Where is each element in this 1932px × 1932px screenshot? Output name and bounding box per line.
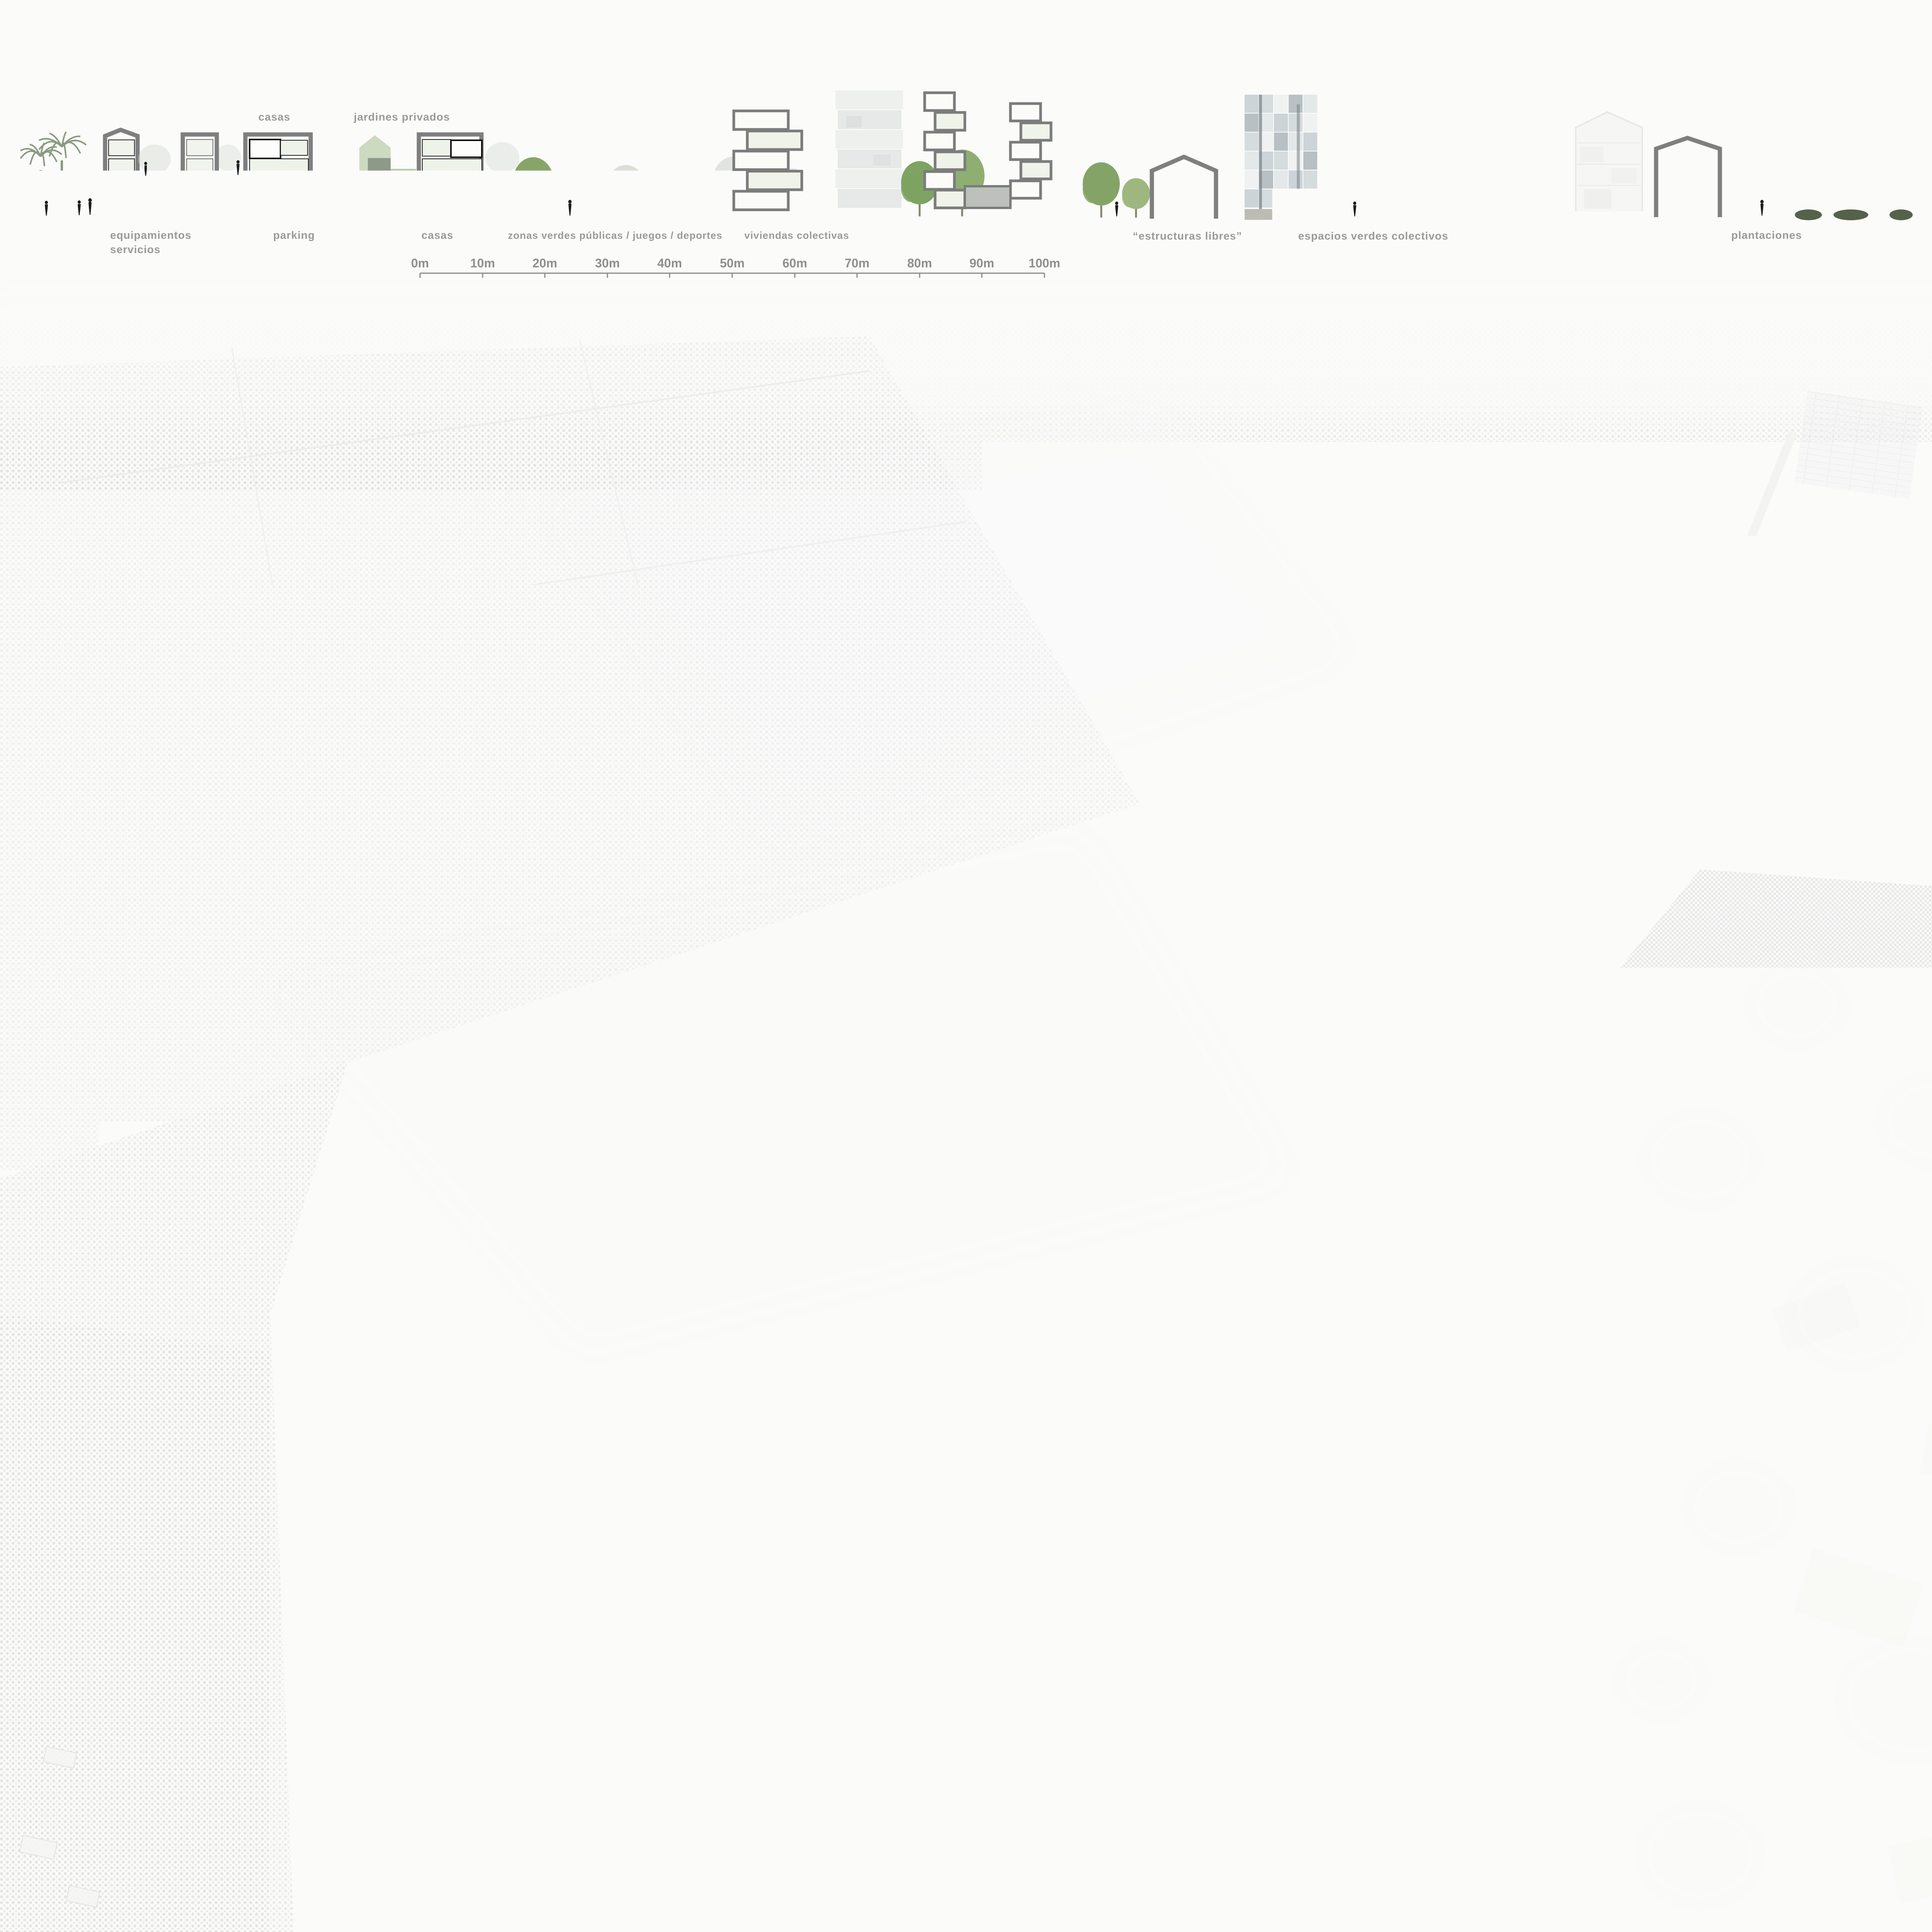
svg-text:Barrio Sant Joan: Barrio Sant Joan bbox=[600, 1494, 767, 1516]
svg-text:40m: 40m bbox=[657, 256, 682, 270]
svg-text:0m: 0m bbox=[411, 256, 429, 270]
svg-text:60m: 60m bbox=[782, 256, 807, 270]
svg-text:10m: 10m bbox=[470, 256, 495, 270]
svg-text:casas: casas bbox=[422, 229, 454, 241]
svg-text:plantaciones: plantaciones bbox=[1731, 229, 1802, 241]
svg-text:Sector B3/B4: Sector B3/B4 bbox=[230, 1734, 359, 1755]
svg-text:servicios: servicios bbox=[110, 243, 160, 255]
svg-text:100m: 100m bbox=[1029, 256, 1060, 270]
svg-text:Proyecto: Proyecto bbox=[1533, 1312, 1626, 1335]
svg-text:jardines privados: jardines privados bbox=[354, 111, 450, 123]
svg-text:casas: casas bbox=[259, 111, 291, 123]
svg-text:90m: 90m bbox=[969, 256, 994, 270]
svg-text:Sector B7: Sector B7 bbox=[1009, 1208, 1105, 1230]
svg-text:Parque/Tanatorio: Parque/Tanatorio bbox=[1533, 1346, 1709, 1369]
svg-text:equipamientos: equipamientos bbox=[110, 229, 192, 241]
svg-text:30m: 30m bbox=[595, 256, 620, 270]
svg-text:20m: 20m bbox=[532, 256, 557, 270]
svg-text:70m: 70m bbox=[845, 256, 869, 270]
svg-text:“estructuras libres”: “estructuras libres” bbox=[1133, 230, 1242, 242]
svg-text:80m: 80m bbox=[907, 256, 932, 270]
svg-text:viviendas colectivas: viviendas colectivas bbox=[744, 230, 849, 241]
svg-text:50m: 50m bbox=[720, 256, 745, 270]
svg-text:zonas verdes públicas / juegos: zonas verdes públicas / juegos / deporte… bbox=[508, 230, 722, 241]
svg-text:espacios verdes colectivos: espacios verdes colectivos bbox=[1298, 230, 1449, 242]
svg-text:parking: parking bbox=[273, 229, 315, 241]
